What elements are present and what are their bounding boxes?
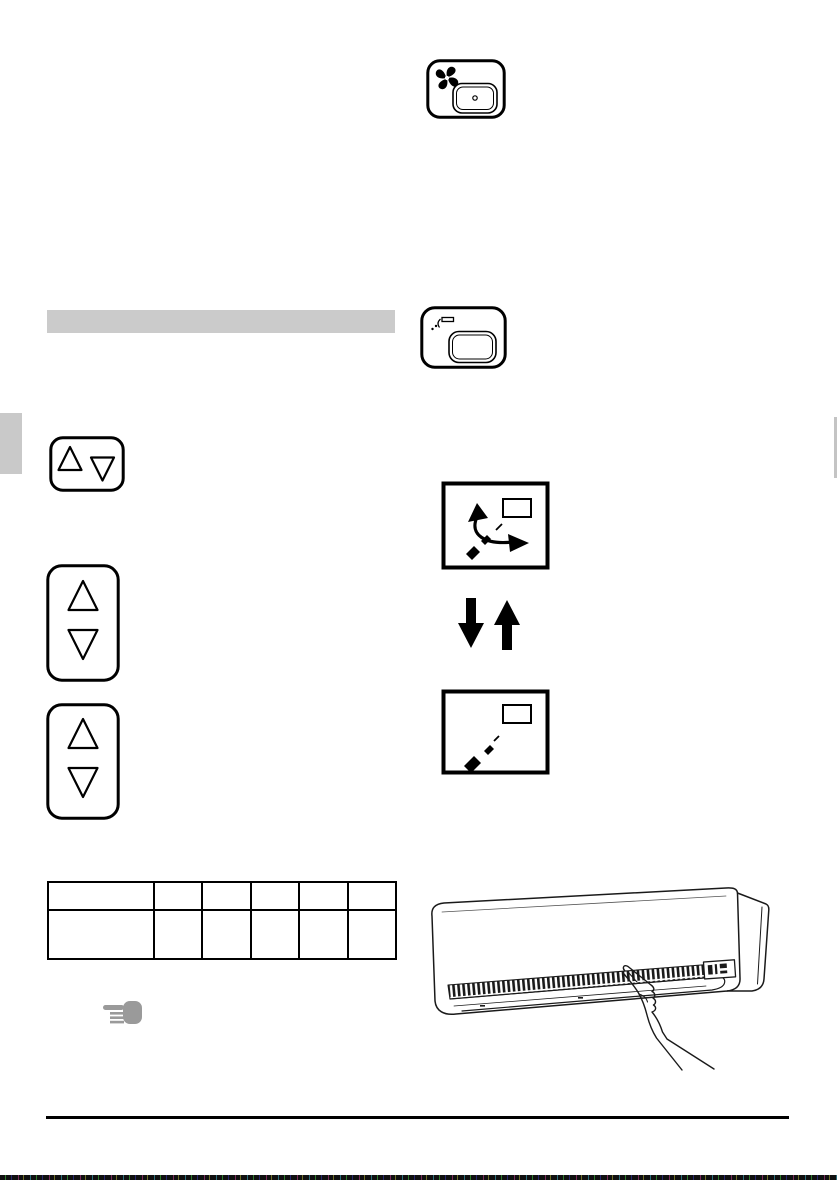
page-edge-tab [0,413,22,474]
table-cell [251,910,299,959]
triangle-up-icon [69,581,98,610]
fan-key-icon [453,84,497,114]
table-row [48,882,396,910]
triangle-down-icon [69,630,98,659]
louver-grille [448,964,716,999]
scan-noise-strip [0,1175,837,1180]
table-cell [154,882,202,910]
spec-table-wrapper [47,881,395,958]
section-header-bar [47,310,395,333]
fan-button-illustration [426,59,506,119]
louver-rect-icon [503,499,531,517]
table-cell [251,882,299,910]
dashed-flap-icon [464,736,499,773]
table-cell [299,910,348,959]
louver-rect-icon [503,705,531,723]
manual-page [0,0,837,1181]
pointing-hand-icon [102,998,144,1028]
indoor-unit-illustration [418,882,806,1077]
triangle-down-icon [91,458,114,481]
triangle-up-icon [59,447,82,470]
swing-louver-icon [431,318,453,331]
fixed-flap-display-box [441,689,550,775]
table-cell [202,910,251,959]
empty-spec-table [47,881,397,960]
swing-button-illustration [420,306,507,369]
display-panel [703,960,735,979]
footer-rule [46,1116,789,1119]
direction-arrows [455,596,523,652]
temp-updown-button-illustration [49,436,125,492]
arrow-up-icon [494,600,520,650]
table-cell [348,910,396,959]
triangle-up-icon [69,719,98,748]
table-cell [48,882,154,910]
table-cell [48,910,154,959]
swing-key-icon [449,332,496,363]
table-row [48,910,396,959]
swing-flap-display-box [441,481,550,570]
arrow-down-icon [458,598,484,648]
table-cell [154,910,202,959]
triangle-down-icon [69,768,98,797]
table-cell [348,882,396,910]
table-cell [202,882,251,910]
updown-button-1-illustration [46,564,120,682]
table-cell [299,882,348,910]
updown-button-2-illustration [46,703,120,820]
